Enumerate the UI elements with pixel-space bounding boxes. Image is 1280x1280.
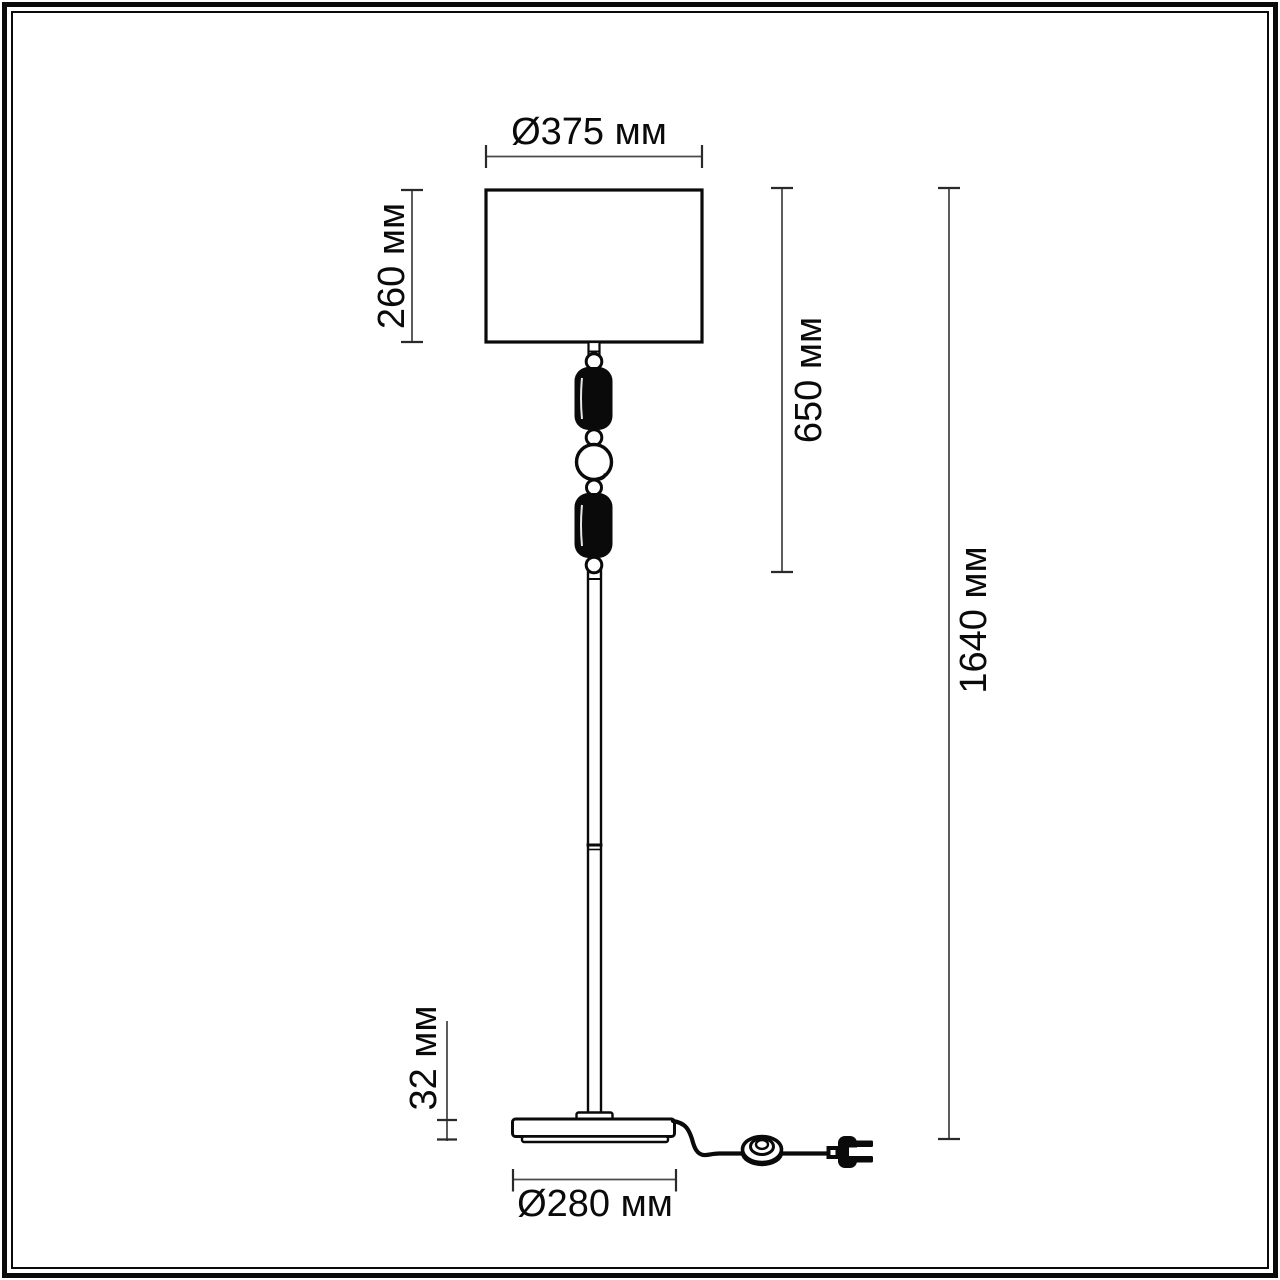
foot-switch bbox=[743, 1137, 782, 1165]
foot-switch-button bbox=[756, 1140, 768, 1149]
dim-base-thickness: 32 мм bbox=[403, 1005, 457, 1141]
decor-ball-1 bbox=[586, 354, 602, 370]
dim-label-shade-diameter: Ø375 мм bbox=[511, 111, 667, 153]
dim-label-base-diameter: Ø280 мм bbox=[517, 1183, 673, 1225]
decor-ball-3 bbox=[587, 480, 602, 495]
lamp-technical-drawing: Ø375 мм 260 мм 650 мм 1640 мм bbox=[0, 0, 1280, 1280]
decor-capsule-top-highlight bbox=[581, 378, 582, 419]
dim-total-height: 1640 мм bbox=[938, 188, 995, 1139]
plug-prong-top bbox=[855, 1141, 873, 1148]
dim-base-diameter: Ø280 мм bbox=[513, 1169, 676, 1225]
base-bottom-plate bbox=[522, 1137, 668, 1143]
drawing-canvas: Ø375 мм 260 мм 650 мм 1640 мм bbox=[0, 0, 1280, 1280]
base-top-plate bbox=[513, 1119, 675, 1137]
dim-label-upper-section-height: 650 мм bbox=[788, 317, 830, 443]
power-plug bbox=[827, 1136, 874, 1168]
plug-notch bbox=[849, 1148, 858, 1157]
lampshade bbox=[486, 190, 702, 342]
dim-label-shade-height: 260 мм bbox=[371, 203, 413, 329]
plug-cord-grip-hole bbox=[831, 1150, 836, 1155]
dim-upper-section-height: 650 мм bbox=[771, 188, 830, 572]
dim-shade-diameter: Ø375 мм bbox=[486, 111, 702, 168]
dim-shade-height: 260 мм bbox=[371, 190, 423, 342]
decor-capsule-bottom-highlight bbox=[581, 505, 582, 546]
plug-prong-bottom bbox=[855, 1156, 873, 1163]
dim-label-base-thickness: 32 мм bbox=[403, 1005, 445, 1110]
dim-label-total-height: 1640 мм bbox=[953, 546, 995, 693]
decor-ball-4 bbox=[586, 557, 602, 573]
